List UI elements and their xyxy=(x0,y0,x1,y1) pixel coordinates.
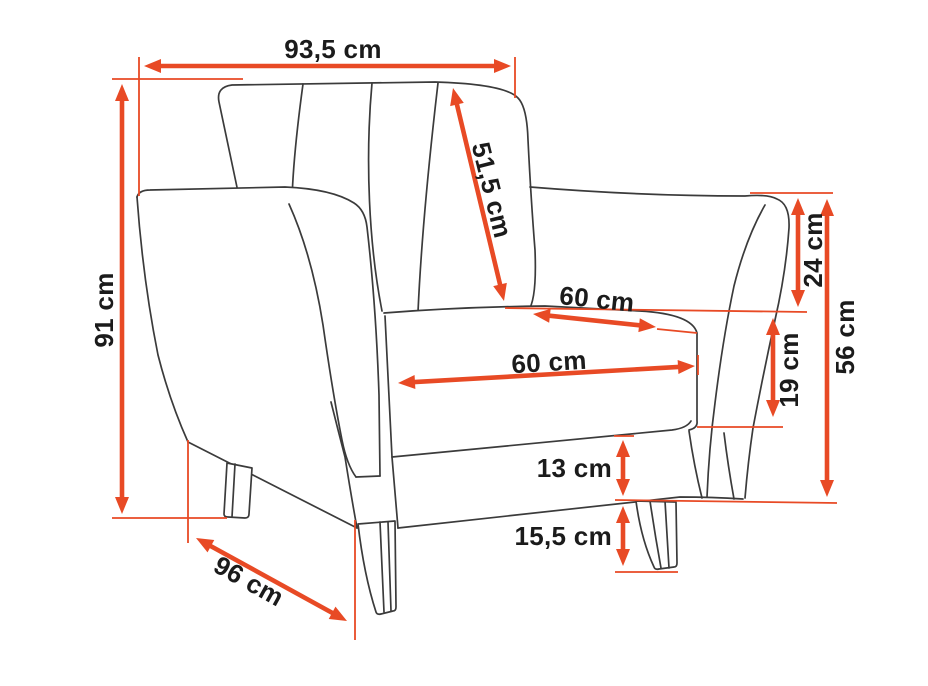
arrow-head-icon xyxy=(616,549,630,566)
armchair-dimension-drawing: 93,5 cm 91 cm 51,5 cm 60 cm 60 cm 24 cm … xyxy=(0,0,928,686)
arrow-head-icon xyxy=(494,59,511,73)
dim-label-overall-height: 91 cm xyxy=(89,272,119,347)
dim-label-seat-width: 60 cm xyxy=(511,345,588,380)
dimension-diagram-canvas: 93,5 cm 91 cm 51,5 cm 60 cm 60 cm 24 cm … xyxy=(0,0,928,686)
arrow-head-icon xyxy=(115,497,129,514)
front-right-leg xyxy=(636,501,677,569)
left-armrest-fill xyxy=(137,187,380,528)
arrow-head-icon xyxy=(791,290,805,307)
dim-label-arm-height: 56 cm xyxy=(830,299,860,374)
armchair-line-art xyxy=(137,82,789,614)
dim-label-base-height: 13 cm xyxy=(537,453,612,483)
arrow-head-icon xyxy=(144,59,161,73)
dim-label-seat-to-base: 19 cm xyxy=(774,332,804,407)
seat-base-fill xyxy=(384,306,701,530)
dim-label-overall-depth: 96 cm xyxy=(209,550,289,613)
dim-label-arm-to-seat: 24 cm xyxy=(798,212,828,287)
arrow-head-icon xyxy=(820,480,834,497)
left-armrest-front-band-bottom xyxy=(356,476,380,477)
dimension-arrow-leg-height xyxy=(616,506,630,566)
arrow-head-icon xyxy=(616,506,630,523)
arrow-head-icon xyxy=(115,84,129,101)
dim-label-overall-width: 93,5 cm xyxy=(284,34,382,64)
dim-label-leg-height: 15,5 cm xyxy=(514,521,612,551)
back-left-leg xyxy=(224,463,252,518)
